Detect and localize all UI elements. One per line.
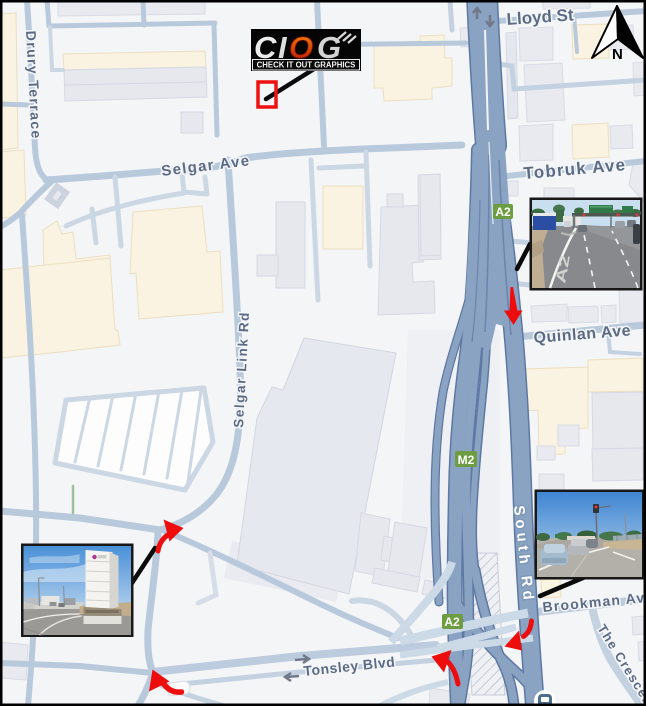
svg-text:N: N <box>612 46 623 63</box>
svg-text:A2: A2 <box>495 205 511 219</box>
svg-text:A2: A2 <box>444 615 460 629</box>
svg-text:M2: M2 <box>458 453 475 467</box>
svg-text:CHECK IT OUT GRAPHICS: CHECK IT OUT GRAPHICS <box>257 61 356 70</box>
